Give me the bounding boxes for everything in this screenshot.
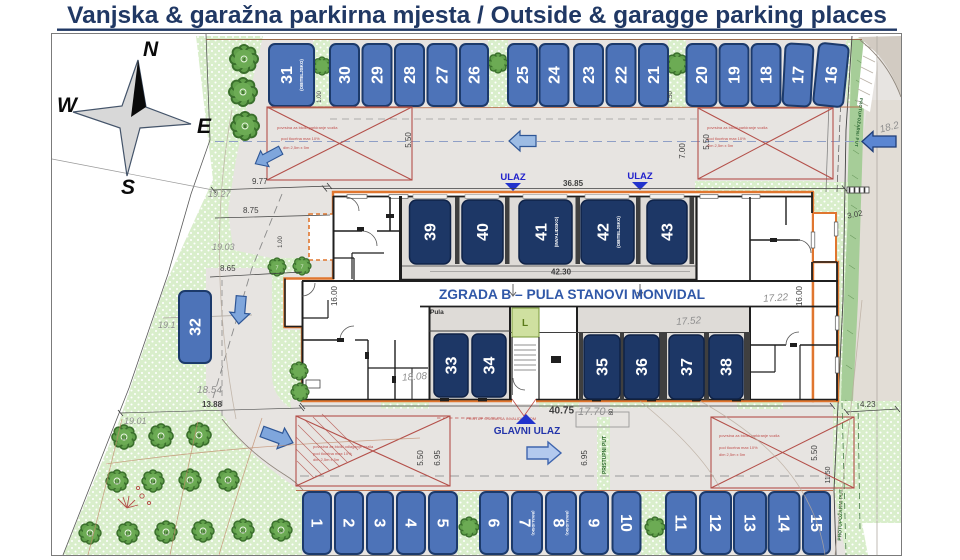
svg-text:19: 19: [727, 66, 744, 84]
svg-text:21: 21: [240, 529, 246, 534]
svg-text:9.77: 9.77: [252, 177, 268, 186]
svg-text:24: 24: [547, 66, 564, 84]
svg-text:23: 23: [581, 66, 598, 84]
svg-text:7: 7: [275, 266, 278, 272]
svg-text:28: 28: [402, 66, 419, 84]
svg-text:18.54: 18.54: [197, 385, 222, 396]
svg-text:5.50: 5.50: [416, 450, 425, 466]
svg-text:GLAVNI ULAZ: GLAVNI ULAZ: [494, 426, 560, 437]
svg-text:povrsina za bicikl parkiranje: povrsina za bicikl parkiranje vozila: [707, 125, 768, 130]
svg-text:14: 14: [150, 480, 156, 485]
svg-text:16.00: 16.00: [330, 285, 339, 306]
svg-text:17: 17: [790, 66, 808, 85]
svg-text:22: 22: [614, 66, 631, 84]
svg-text:2: 2: [340, 519, 357, 528]
svg-text:pod tlocrtna max 10%: pod tlocrtna max 10%: [707, 136, 746, 141]
svg-text:N: N: [143, 38, 159, 61]
svg-text:ULAZ: ULAZ: [500, 172, 526, 183]
svg-text:25: 25: [515, 66, 532, 84]
svg-text:5.50: 5.50: [702, 134, 711, 150]
svg-text:6.95: 6.95: [580, 450, 589, 466]
svg-text:11.50: 11.50: [825, 466, 832, 483]
svg-text:15: 15: [807, 514, 824, 532]
svg-text:pod tlocrtna max 10%: pod tlocrtna max 10%: [719, 445, 758, 450]
svg-text:40: 40: [475, 223, 492, 241]
svg-text:21: 21: [646, 66, 663, 84]
svg-text:20: 20: [694, 66, 711, 84]
svg-text:39: 39: [423, 223, 440, 241]
svg-text:31: 31: [279, 66, 296, 84]
svg-text:13.88: 13.88: [202, 400, 223, 409]
svg-text:32: 32: [188, 318, 205, 336]
svg-text:1: 1: [308, 519, 325, 528]
svg-text:PRISTUPNI PUT: PRISTUPNI PUT: [602, 436, 608, 474]
svg-text:29: 29: [370, 66, 387, 84]
svg-text:3: 3: [371, 519, 388, 528]
svg-text:34: 34: [482, 357, 499, 375]
svg-text:S: S: [121, 176, 135, 199]
svg-text:dim 2,5m x 5m: dim 2,5m x 5m: [707, 143, 734, 148]
svg-text:(OBITELJSKO): (OBITELJSKO): [616, 216, 621, 248]
svg-text:16: 16: [87, 532, 93, 537]
svg-text:27: 27: [435, 66, 452, 84]
svg-text:19.1: 19.1: [158, 320, 176, 330]
svg-text:18: 18: [163, 531, 169, 536]
svg-text:15: 15: [187, 479, 193, 484]
svg-text:19.03: 19.03: [212, 242, 235, 252]
svg-text:4: 4: [402, 519, 419, 528]
svg-text:povrsina za bicikl odlaganje v: povrsina za bicikl odlaganje vozila: [313, 444, 374, 449]
svg-text:18: 18: [759, 66, 776, 84]
svg-text:1.00: 1.00: [317, 91, 323, 103]
svg-text:9: 9: [585, 519, 602, 528]
svg-text:dim 2,5m x 5m: dim 2,5m x 5m: [719, 452, 746, 457]
svg-text:ULAZ: ULAZ: [627, 171, 653, 182]
svg-text:26: 26: [467, 66, 484, 84]
svg-text:42.30: 42.30: [551, 268, 572, 277]
svg-text:11: 11: [672, 515, 689, 532]
svg-text:13: 13: [114, 480, 120, 485]
svg-text:10: 10: [617, 514, 634, 532]
svg-text:43: 43: [660, 223, 677, 241]
svg-text:12: 12: [706, 514, 723, 532]
svg-text:E: E: [197, 115, 212, 138]
svg-text:5: 5: [434, 519, 451, 528]
svg-text:L: L: [522, 318, 528, 329]
svg-text:16.00: 16.00: [795, 285, 804, 306]
svg-text:17.22: 17.22: [763, 292, 789, 305]
svg-text:7: 7: [516, 519, 533, 528]
svg-text:povrsina za bicikl parkiranje: povrsina za bicikl parkiranje vozila: [277, 125, 338, 130]
svg-text:W: W: [57, 94, 79, 117]
svg-text:(INVALIDSKO): (INVALIDSKO): [554, 216, 559, 247]
svg-text:40.75: 40.75: [549, 406, 574, 417]
svg-text:19.01: 19.01: [124, 416, 147, 426]
svg-text:pod tlocrtna max 10%: pod tlocrtna max 10%: [313, 451, 352, 456]
svg-text:42: 42: [596, 223, 613, 241]
svg-text:1.00: 1.00: [278, 236, 284, 248]
svg-text:(INVALIDSKI): (INVALIDSKI): [565, 510, 570, 536]
svg-text:36.85: 36.85: [563, 179, 584, 188]
svg-text:7: 7: [300, 265, 303, 271]
svg-text:11: 11: [122, 436, 127, 441]
svg-text:10: 10: [158, 435, 164, 440]
svg-text:37: 37: [679, 358, 696, 376]
svg-text:(INVALIDSKI): (INVALIDSKI): [531, 510, 536, 536]
svg-text:13: 13: [741, 514, 758, 532]
svg-text:1.50: 1.50: [668, 91, 674, 103]
svg-text:16: 16: [823, 65, 842, 85]
svg-text:19: 19: [200, 530, 206, 535]
svg-text:pod tlocrtna max 10%: pod tlocrtna max 10%: [281, 136, 320, 141]
svg-text:4.23: 4.23: [860, 400, 876, 409]
svg-text:36: 36: [634, 358, 651, 376]
svg-text:14: 14: [775, 514, 792, 532]
svg-text:6: 6: [485, 519, 502, 528]
svg-text:8.75: 8.75: [243, 206, 259, 215]
svg-text:17: 17: [125, 532, 131, 537]
svg-text:6.95: 6.95: [433, 450, 442, 466]
svg-text:20: 20: [278, 529, 284, 534]
svg-text:33: 33: [444, 357, 461, 375]
svg-text:12: 12: [225, 479, 231, 484]
svg-text:7.00: 7.00: [678, 143, 687, 159]
svg-text:5.50: 5.50: [810, 445, 819, 461]
svg-text:30: 30: [337, 66, 354, 84]
svg-text:80: 80: [609, 408, 615, 415]
svg-text:17.52: 17.52: [676, 315, 702, 328]
svg-text:35: 35: [595, 358, 612, 376]
svg-text:8: 8: [550, 519, 567, 528]
svg-text:5.50: 5.50: [404, 132, 413, 148]
svg-text:38: 38: [719, 358, 736, 376]
svg-text:18.08: 18.08: [402, 371, 428, 384]
svg-text:Vanjska & garažna parkirna mje: Vanjska & garažna parkirna mjesta / Outs…: [67, 2, 887, 29]
svg-text:41: 41: [534, 223, 551, 241]
svg-text:Pula: Pula: [430, 309, 444, 316]
svg-text:8.65: 8.65: [220, 264, 236, 273]
svg-text:ZGRADA B – PULA STANOVI MONVID: ZGRADA B – PULA STANOVI MONVIDAL: [439, 287, 705, 302]
svg-text:dim 2,5m x 5m: dim 2,5m x 5m: [283, 145, 310, 150]
svg-text:19.27: 19.27: [208, 189, 232, 199]
svg-text:(OBITELJSKO): (OBITELJSKO): [299, 59, 304, 91]
